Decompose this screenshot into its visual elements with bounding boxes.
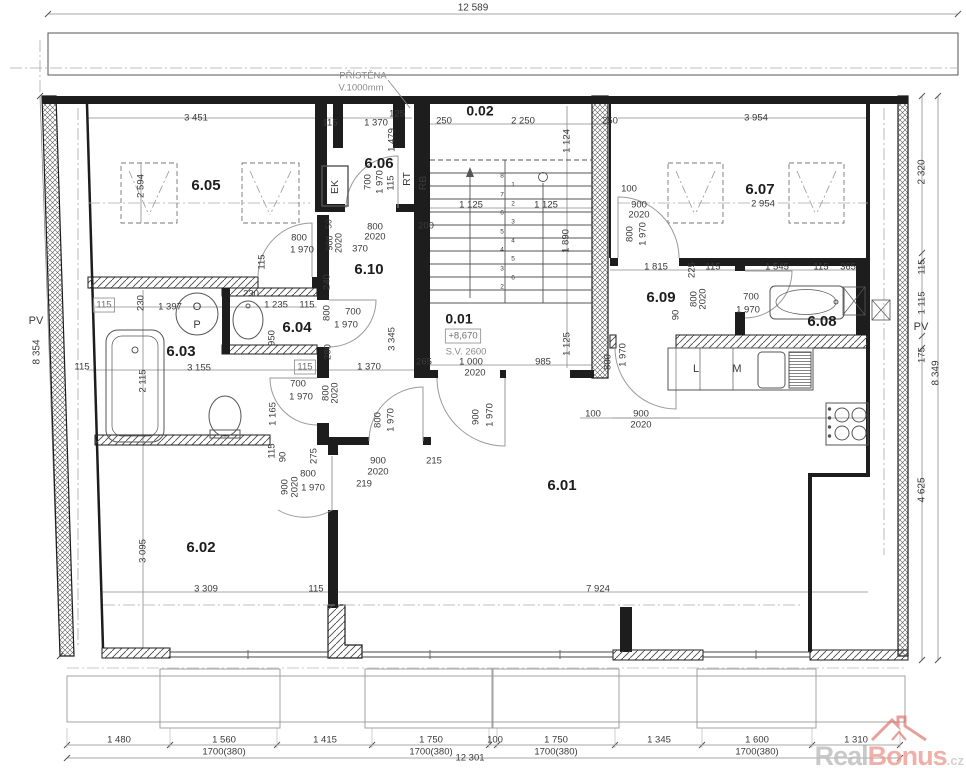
dim-label: L <box>693 363 699 375</box>
dim-label: 250 <box>436 116 452 127</box>
dim-label: 1 970 <box>375 170 386 194</box>
dim-label: 1 970 <box>301 483 325 494</box>
dim-label: 8 349 <box>931 360 942 385</box>
dim-label: PŘÍSTĚNA <box>339 71 387 82</box>
dim-label: 2020 <box>364 232 385 243</box>
dim-label: 230 <box>136 295 147 311</box>
dim-label: P <box>193 319 200 331</box>
dim-label: 1 479 <box>387 128 398 152</box>
dim-label: 950 <box>267 330 278 346</box>
roof-window-icon <box>789 163 844 223</box>
dim-label: 90 <box>671 310 682 321</box>
room-label-6-06: 6.06 <box>364 155 393 172</box>
stair-tread-number: 2 <box>500 284 504 291</box>
dim-label: 700 <box>363 174 374 190</box>
dim-label: 100 <box>487 735 503 746</box>
dim-label: 1 970 <box>386 408 397 432</box>
dim-label: 3 954 <box>744 113 768 124</box>
dim-label: 240 <box>322 274 333 290</box>
dim-label: 1 750 <box>419 735 443 746</box>
dim-label: 225 <box>687 262 698 278</box>
dim-label: 125 <box>389 109 405 120</box>
dim-label: 4 625 <box>917 477 928 502</box>
dimension-ticks <box>37 11 961 761</box>
dim-label: 1 125 <box>459 200 483 211</box>
dim-label: PV <box>914 321 929 333</box>
dim-label: 115 <box>308 584 323 595</box>
watermark-realbonus: RealBonus.cz <box>815 743 964 768</box>
room-label-6-04: 6.04 <box>282 319 312 336</box>
dim-label: 1 370 <box>357 362 381 373</box>
kitchen-sink-icon <box>758 352 785 388</box>
room-label-0-02: 0.02 <box>466 103 493 119</box>
dim-label: 1700(380) <box>202 747 245 758</box>
dim-label: 700 <box>743 292 759 303</box>
room-label-6-02: 6.02 <box>186 539 215 556</box>
watermark-tld: .cz <box>947 753 964 768</box>
dim-label: 1 125 <box>562 332 573 356</box>
roof-windows <box>121 163 844 223</box>
stove-icon <box>826 403 868 445</box>
dim-label: EK <box>329 180 341 194</box>
dim-label: 2020 <box>464 368 485 379</box>
toilet-icon <box>209 396 241 438</box>
stair-tread-number: 5 <box>511 256 515 263</box>
realbonus-house-icon <box>870 712 928 742</box>
stair-tread-number: 2 <box>511 201 515 208</box>
dim-label: 800 <box>603 354 614 370</box>
stair-tread-number: 6 <box>500 210 504 217</box>
dim-label: 115 <box>322 118 337 129</box>
dim-label: 900 <box>633 409 649 420</box>
roof-window-icon <box>668 163 723 223</box>
eave-outline <box>10 33 958 95</box>
dim-label: RB <box>417 176 429 191</box>
dim-label: 1 235 <box>264 300 288 311</box>
dim-label: 800 <box>291 233 307 244</box>
dim-label: 800 <box>625 226 636 242</box>
dim-label: 3 095 <box>138 539 149 563</box>
dim-label: 230 <box>243 289 259 300</box>
dim-label: 3 345 <box>387 327 398 351</box>
dim-label: 800 <box>322 305 333 321</box>
stair-tread-number: 4 <box>511 238 515 245</box>
dim-label: 275 <box>309 448 320 464</box>
dim-label: 100 <box>585 409 601 420</box>
dim-label: 1 545 <box>765 262 789 273</box>
dim-label: 1 397 <box>158 302 182 313</box>
dim-label: 1 970 <box>618 343 629 367</box>
bathtub-icon <box>106 330 164 442</box>
dim-label: 1 125 <box>534 200 558 211</box>
dim-label: 2 594 <box>136 174 147 198</box>
dim-label: 1700(380) <box>534 747 577 758</box>
dim-label: 2 954 <box>751 199 775 210</box>
dim-label: 7 924 <box>586 584 610 595</box>
dim-label: 1 750 <box>544 735 568 746</box>
room-label-6-07: 6.07 <box>745 181 774 198</box>
dim-label: 1 480 <box>107 735 131 746</box>
dim-label: 115 <box>257 254 268 269</box>
dim-label: 900 <box>370 456 386 467</box>
dim-label: 200 <box>418 221 434 232</box>
dim-label: 365 <box>840 262 856 273</box>
dim-label: O <box>193 301 202 313</box>
stair-tread-number: 7 <box>500 192 504 199</box>
stair-tread-number: 1 <box>511 182 515 189</box>
dim-label: 1 970 <box>289 392 313 403</box>
dim-label: 1 124 <box>562 129 573 153</box>
dishwasher-icon <box>789 352 811 388</box>
dim-label: 1 970 <box>638 222 649 246</box>
dim-label: 219 <box>356 479 372 490</box>
level-label: +8,670 <box>448 331 477 342</box>
dim-label: 2020 <box>330 382 341 403</box>
dim-label: 1700(380) <box>735 747 778 758</box>
lower-eave <box>67 668 905 728</box>
dim-label: 100 <box>621 184 637 195</box>
watermark-real: Real <box>815 741 868 768</box>
dim-label: 370 <box>352 244 368 255</box>
dim-label: 8 354 <box>32 339 43 364</box>
dim-label: 2020 <box>630 420 651 431</box>
dim-label: 1 600 <box>745 735 769 746</box>
stair-tread-number: 6 <box>511 275 515 282</box>
roof-window-icon <box>121 163 177 223</box>
dim-label: 700 <box>345 307 361 318</box>
stair-tread-number: 4 <box>500 247 504 254</box>
dim-label: 2020 <box>367 467 388 478</box>
dim-label: 115 <box>386 175 397 190</box>
dim-label: 115 <box>74 362 89 373</box>
dim-label: 175 <box>917 347 928 363</box>
dim-label: 1 970 <box>485 403 496 427</box>
dim-label: 115 <box>297 362 312 373</box>
dim-label: 985 <box>535 357 551 368</box>
dim-label: 1 970 <box>290 245 314 256</box>
dim-label: 1 970 <box>334 320 358 331</box>
roof-window-icon <box>242 163 299 223</box>
room-label-0-01: 0.01 <box>445 311 472 327</box>
dim-label: 115 <box>917 259 928 274</box>
room-label-6-05: 6.05 <box>191 177 220 194</box>
dim-label: 50 <box>323 219 333 229</box>
room-label-6-08: 6.08 <box>807 313 836 330</box>
dim-label: 265 <box>416 357 432 368</box>
room-label-6-10: 6.10 <box>354 261 383 278</box>
dim-label: 3 309 <box>194 584 218 595</box>
dim-label: 1 370 <box>364 118 388 129</box>
stair-tread-number: 3 <box>511 219 515 226</box>
dim-label: V.1000mm <box>338 83 383 94</box>
dim-label: 1700(380) <box>409 747 452 758</box>
dim-label: 1 115 <box>917 291 928 314</box>
window-sills <box>170 650 810 659</box>
dim-label: 3 451 <box>184 113 208 124</box>
dim-label: 115 <box>96 300 111 311</box>
dim-label: 2 115 <box>138 369 149 392</box>
stair-tread-number: 3 <box>500 266 504 273</box>
dim-label: 12 589 <box>458 3 489 14</box>
dim-label: 1 345 <box>647 735 671 746</box>
dim-label: 700 <box>290 379 306 390</box>
stair-tread-number: 8 <box>500 173 504 180</box>
dim-label: 2 320 <box>917 159 928 184</box>
dim-label: RT <box>401 172 413 186</box>
dim-label: 2020 <box>698 288 709 309</box>
watermark-bonus: Bonus <box>868 741 947 768</box>
dim-label: 280 <box>323 344 334 360</box>
dim-label: 90 <box>278 452 289 463</box>
dim-label: 12 301 <box>455 753 484 764</box>
dim-label: 2020 <box>333 233 343 253</box>
dim-label: 3 155 <box>187 363 211 374</box>
dim-label: 900 <box>471 409 482 425</box>
dim-label: 800 <box>373 412 384 428</box>
dimension-lines <box>40 14 958 758</box>
room-label-6-01: 6.01 <box>547 477 576 494</box>
dim-label: 1 890 <box>561 229 572 253</box>
dim-label: 115 <box>705 262 720 273</box>
dim-label: 2 250 <box>511 116 535 127</box>
dim-label: 1 970 <box>736 305 760 316</box>
room-label-6-09: 6.09 <box>646 289 675 306</box>
dim-label: 1 815 <box>644 262 668 273</box>
dim-label: 1 560 <box>212 735 236 746</box>
floor-plan-page: 12 589PŘÍSTĚNAV.1000mm3 4511151 37012525… <box>0 0 966 768</box>
dim-label: 115 <box>299 300 314 311</box>
floor-plan-drawing: 12 589PŘÍSTĚNAV.1000mm3 4511151 37012525… <box>0 0 966 768</box>
dim-label: 215 <box>426 456 442 467</box>
dim-label: 250 <box>602 116 618 127</box>
dim-label: 1 415 <box>313 735 337 746</box>
dim-label: M <box>732 363 741 375</box>
dim-label: 1 165 <box>268 402 279 426</box>
dim-label: PV <box>29 315 44 327</box>
dim-label: 800 <box>300 469 316 480</box>
dim-label: 115 <box>267 443 278 458</box>
dim-label: 2020 <box>290 476 301 497</box>
dim-label: 2020 <box>628 210 649 221</box>
room-label-6-03: 6.03 <box>166 343 195 360</box>
stair-tread-number: 5 <box>500 229 504 236</box>
dim-label: 1 000 <box>459 357 483 368</box>
dim-label: 115 <box>813 262 828 273</box>
